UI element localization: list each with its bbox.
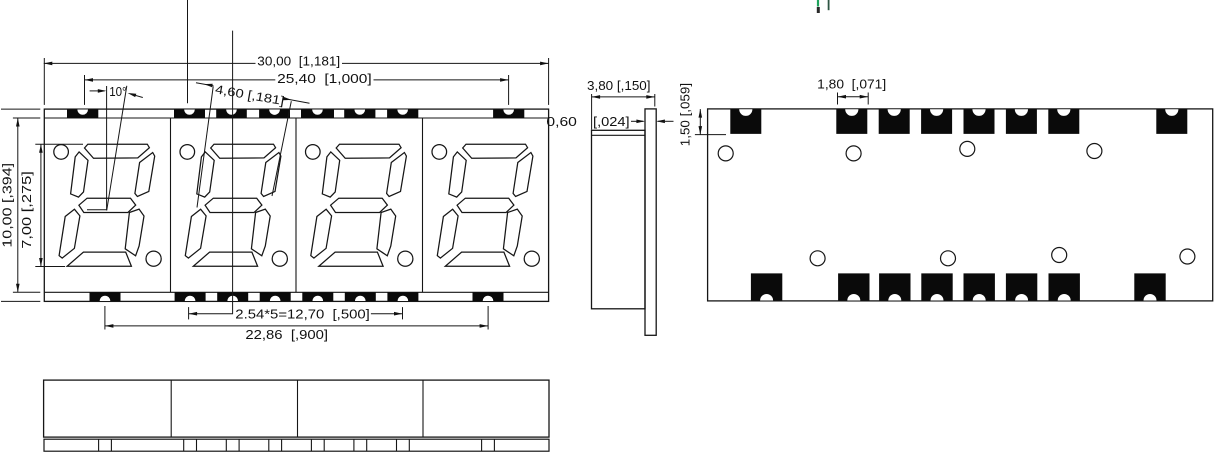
svg-text:25,40 [1,000]: 25,40 [1,000] xyxy=(277,71,372,86)
svg-text:7,00 [,275]: 7,00 [,275] xyxy=(19,171,34,249)
svg-text:30,00 [1,181]: 30,00 [1,181] xyxy=(257,54,340,69)
svg-text:1,50 [,059]: 1,50 [,059] xyxy=(678,83,693,146)
svg-text:22,86 [,900]: 22,86 [,900] xyxy=(245,327,328,342)
svg-text:1,80 [,071]: 1,80 [,071] xyxy=(817,76,886,91)
svg-text:0,60: 0,60 xyxy=(546,114,577,129)
svg-text:[,024]: [,024] xyxy=(593,114,630,129)
svg-text:10,00 [,394]: 10,00 [,394] xyxy=(0,163,15,248)
svg-text:3,80 [,150]: 3,80 [,150] xyxy=(587,78,651,93)
svg-text:10°: 10° xyxy=(109,84,127,99)
svg-text:2.54*5=12,70 [,500]: 2.54*5=12,70 [,500] xyxy=(235,306,369,321)
